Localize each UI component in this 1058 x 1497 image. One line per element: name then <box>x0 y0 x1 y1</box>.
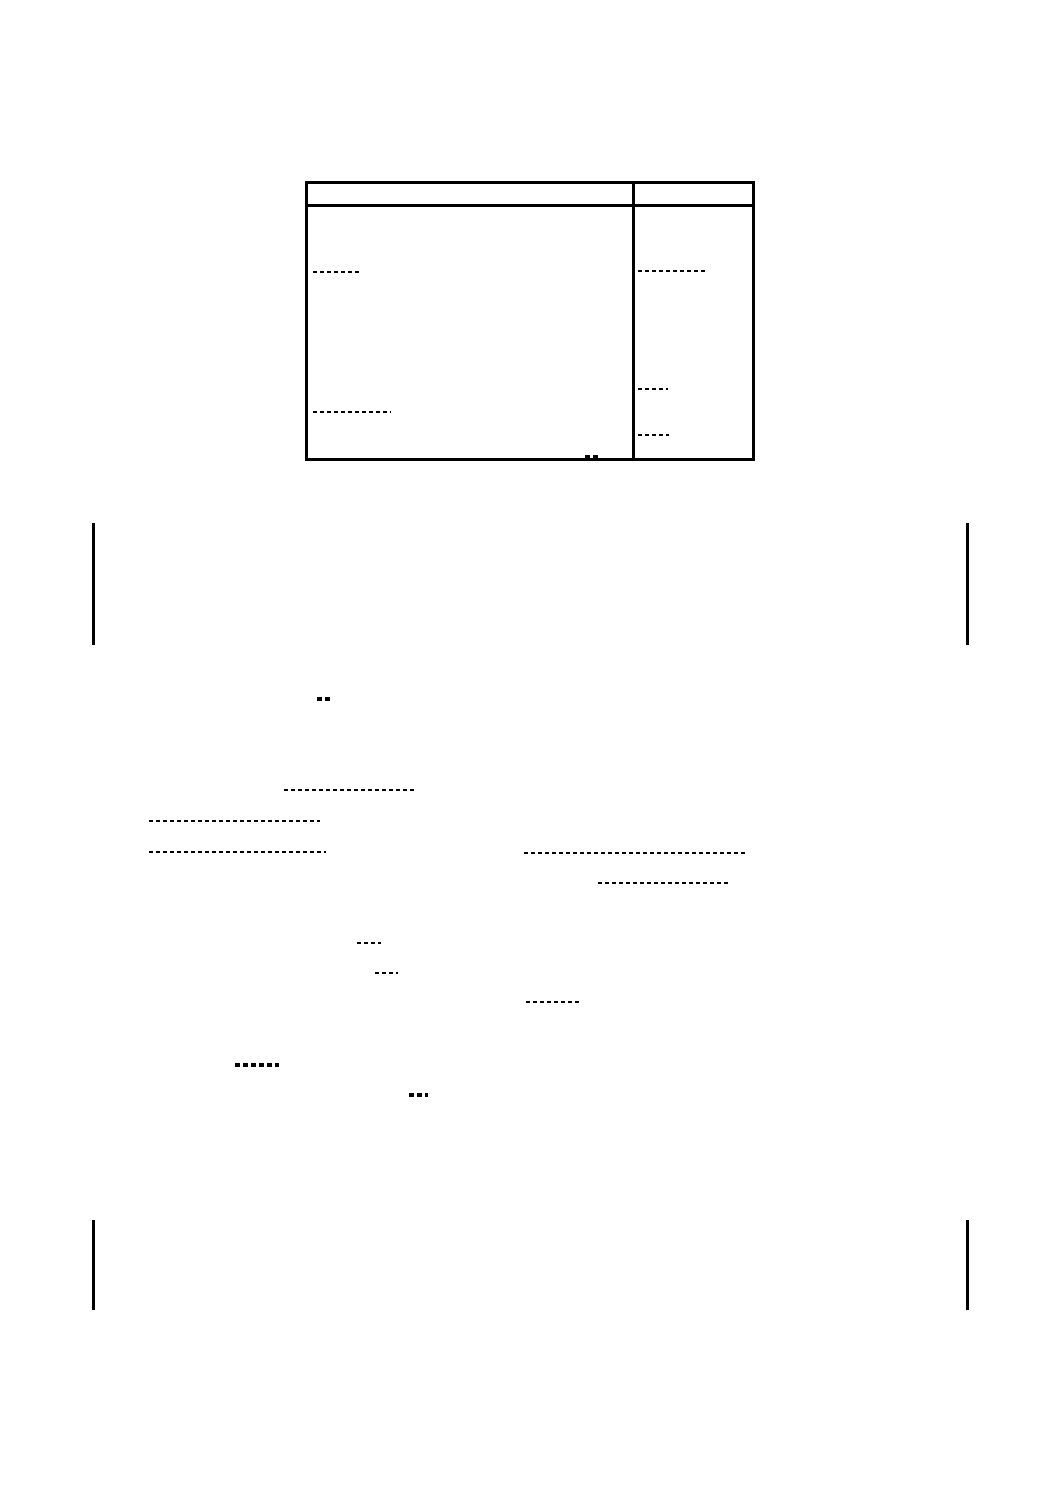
document-table <box>305 181 755 461</box>
bold-dash-mark <box>409 1093 428 1097</box>
bold-dash-mark <box>235 1063 279 1067</box>
vertical-fold-mark <box>92 523 95 645</box>
bold-dash-mark <box>585 455 599 459</box>
dashed-underline-mark <box>313 411 391 413</box>
dashed-underline-mark <box>524 852 746 854</box>
vertical-fold-mark <box>966 523 969 645</box>
table-column-divider <box>632 184 635 458</box>
dashed-underline-mark <box>638 434 669 436</box>
scanned-document-page <box>0 0 1058 1497</box>
dashed-underline-mark <box>313 271 361 273</box>
dashed-underline-mark <box>598 882 731 884</box>
vertical-fold-mark <box>966 1220 969 1310</box>
table-header-divider <box>308 204 752 207</box>
vertical-fold-mark <box>92 1220 95 1310</box>
dashed-underline-mark <box>526 1001 581 1003</box>
bold-dash-mark <box>317 697 331 701</box>
dashed-underline-mark <box>357 942 381 944</box>
dashed-underline-mark <box>284 789 414 791</box>
dashed-underline-mark <box>149 851 326 853</box>
dashed-underline-mark <box>638 270 708 272</box>
dashed-underline-mark <box>638 388 668 390</box>
dashed-underline-mark <box>375 972 398 974</box>
dashed-underline-mark <box>149 820 320 822</box>
